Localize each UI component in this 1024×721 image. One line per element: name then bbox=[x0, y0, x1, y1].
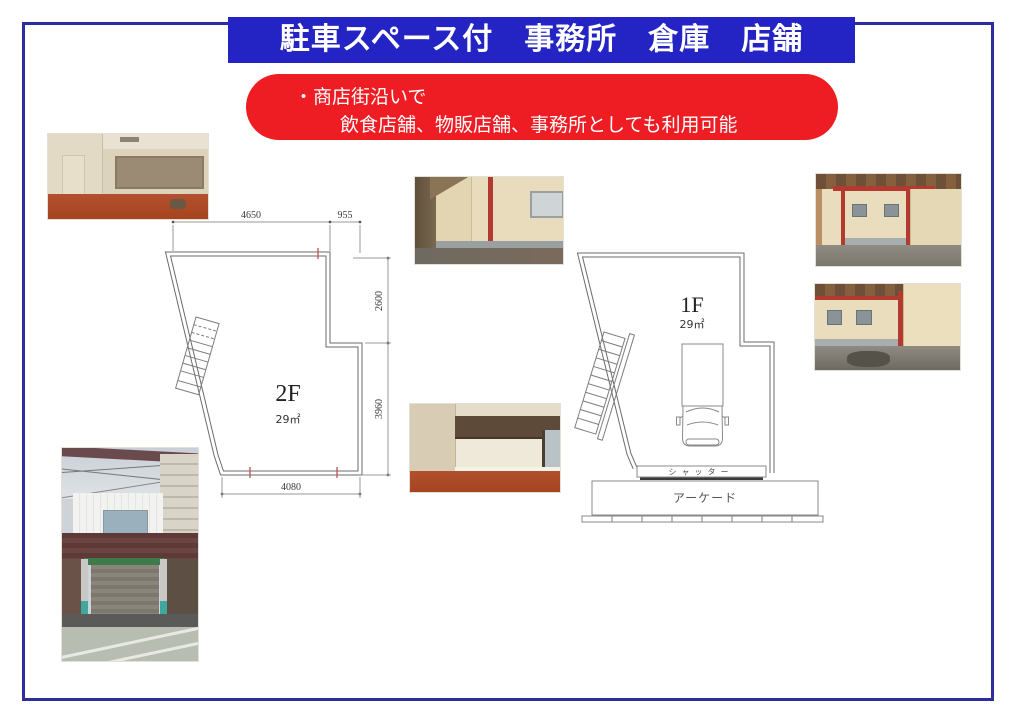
photo-window-right bbox=[884, 204, 899, 217]
truck-cab bbox=[683, 406, 723, 446]
photo-red-floor bbox=[410, 471, 560, 492]
2f-area-label: 29㎡ bbox=[276, 413, 301, 426]
1f-truck-symbol bbox=[677, 344, 729, 446]
page-title: 駐車スペース付 事務所 倉庫 店舗 bbox=[280, 23, 803, 56]
photo-red-pillar bbox=[488, 177, 494, 250]
2f-dim-4650: 4650 bbox=[241, 210, 261, 221]
shutter-rail bbox=[640, 478, 763, 481]
photo-red-post bbox=[898, 291, 903, 351]
photo-window bbox=[530, 191, 563, 218]
1f-arcade: アーケード bbox=[592, 481, 818, 515]
2f-dim-3960: 3960 bbox=[374, 399, 385, 419]
truck-windshield-top bbox=[686, 408, 719, 412]
photo-left-sidewall bbox=[62, 559, 81, 614]
photo-arcade-fascia bbox=[62, 533, 198, 559]
photo-window-left bbox=[852, 204, 867, 217]
2f-dim-955: 955 bbox=[338, 210, 353, 221]
photo-concrete-floor bbox=[816, 245, 961, 266]
2f-floor-label: 2F bbox=[275, 381, 300, 407]
photo-post-left-base bbox=[81, 601, 88, 614]
2f-walls bbox=[168, 254, 360, 473]
floorplan-1f-drawing: 1F 29㎡ シャッター アーケード bbox=[570, 240, 830, 530]
truck-mirror-right bbox=[725, 417, 729, 425]
arcade-label: アーケード bbox=[673, 491, 737, 505]
photo-garage-wide-1 bbox=[816, 174, 961, 266]
1f-area-label: 29㎡ bbox=[680, 318, 705, 331]
photo-window-right bbox=[856, 310, 873, 325]
notice-banner: ・商店街沿いで 飲食店舗、物販店舗、事務所としても利用可能 bbox=[246, 74, 838, 140]
flyer-page: 駐車スペース付 事務所 倉庫 店舗 ・商店街沿いで 飲食店舗、物販店舗、事務所と… bbox=[0, 0, 1024, 721]
1f-floor-label: 1F bbox=[680, 292, 703, 317]
2f-dimension-top: 4650 955 bbox=[172, 210, 361, 253]
notice-line-1: ・商店街沿いで bbox=[294, 82, 426, 109]
photo-floor-stain bbox=[847, 351, 891, 366]
2f-dim-2600: 2600 bbox=[374, 291, 385, 311]
photo-floor bbox=[415, 248, 563, 264]
2f-dim-4080: 4080 bbox=[281, 482, 301, 493]
photo-right-sidewall bbox=[167, 559, 198, 614]
2f-dimension-bottom: 4080 bbox=[221, 477, 361, 498]
1f-base-strip bbox=[582, 516, 823, 522]
photo-upper-windows bbox=[103, 510, 149, 535]
truck-bumper bbox=[686, 439, 719, 445]
photo-garage-wide-2 bbox=[815, 284, 960, 370]
title-banner: 駐車スペース付 事務所 倉庫 店舗 bbox=[228, 17, 855, 63]
shutter-label: シャッター bbox=[669, 468, 734, 477]
photo-bulletin-board bbox=[115, 156, 204, 189]
notice-line-2: 飲食店舗、物販店舗、事務所としても利用可能 bbox=[340, 110, 737, 137]
truck-windshield-bottom bbox=[687, 422, 718, 425]
photo-2f-interior-shelf bbox=[410, 404, 560, 492]
photo-shutter bbox=[91, 565, 159, 614]
photo-road bbox=[62, 614, 198, 627]
photo-window bbox=[542, 430, 560, 467]
photo-post-right-base bbox=[160, 601, 167, 614]
photo-green-signboard bbox=[84, 558, 166, 565]
photo-ceiling-vent bbox=[120, 137, 139, 143]
truck-cargo-box bbox=[682, 344, 723, 406]
floorplan-2f-drawing: 2F 29㎡ 4650 955 2600 3960 bbox=[160, 205, 400, 505]
photo-1f-garage-pillar bbox=[415, 177, 563, 264]
1f-shutter: シャッター bbox=[637, 466, 766, 480]
truck-mirror-left bbox=[677, 417, 681, 425]
